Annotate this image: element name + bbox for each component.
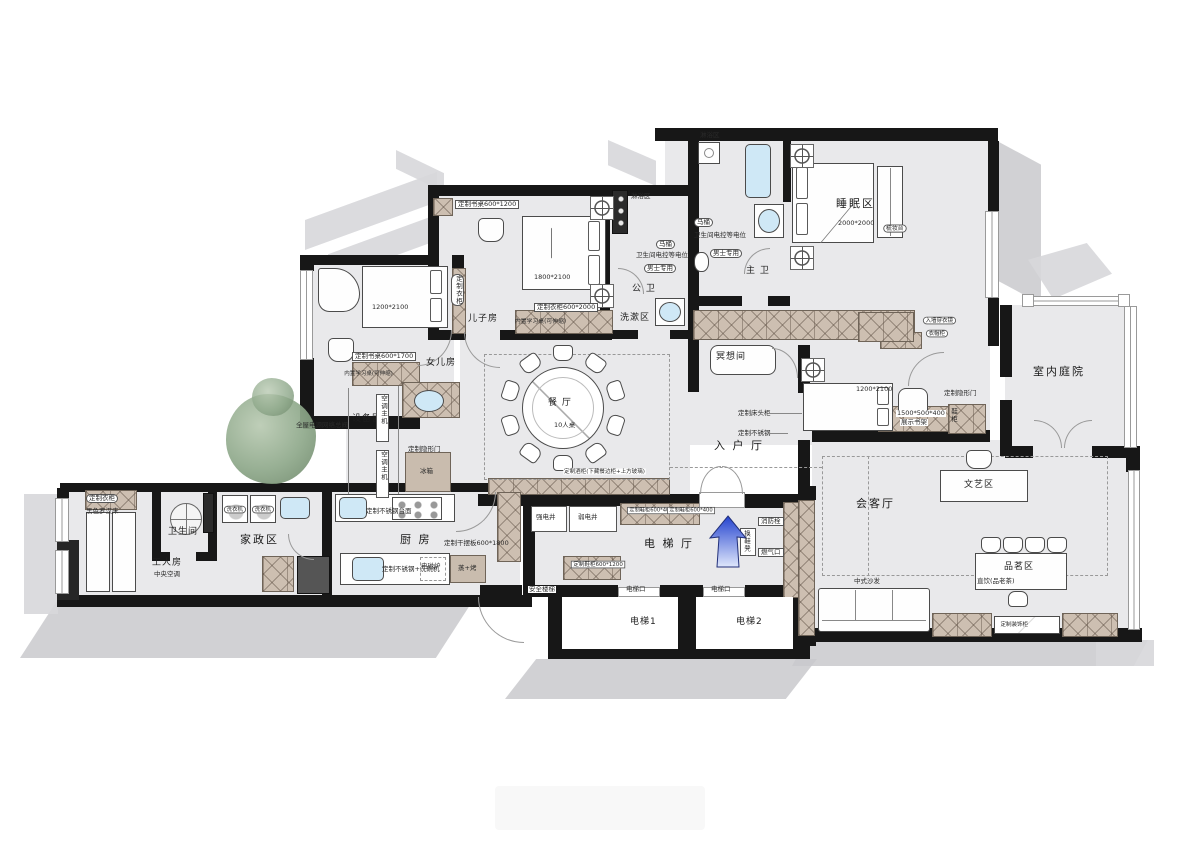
appliance-stack [612,190,628,234]
window-post [1022,294,1034,307]
wardrobe-label: 定制衣柜 [451,274,464,306]
room-label-public-bath: 公 卫 [632,284,656,294]
pillow [588,221,600,251]
shower-drain [704,148,714,158]
toilet [694,252,709,272]
room-label-sleeping: 睡眠区 [836,198,875,211]
elevator-shaft [562,597,678,649]
black-daybed-label: 黑色罗汉床 [86,508,119,515]
bed-dim: 1800*2100 [534,274,570,281]
wardrobe-label: 定制衣柜 [86,494,118,503]
partition [398,386,399,494]
induction-label: 电磁炉 [421,563,441,570]
room-label-kitchen: 厨 房 [400,534,432,547]
weak-shaft-label: 弱电井 [578,514,598,521]
window [55,550,69,594]
laundry-sink [280,497,310,519]
room-label-hall: 电 梯 厅 [644,538,694,551]
floor-plan: 睡眠区 2000*2000 主 卫 公 卫 洗漱区 儿子房 1800*2100 … [0,0,1200,847]
window [55,498,69,542]
cabinet-row [798,500,815,636]
room-label-elevator1: 电梯1 [630,617,657,627]
wall-shadow [792,640,1148,666]
wall-shadow [505,659,817,699]
tea-chair [1025,537,1045,553]
toilet-label: 马桶 [694,218,713,227]
wall [452,255,464,269]
sofa-divider [855,590,856,620]
elevator-door-label: 电梯口 [711,586,731,593]
entry-door-gap [699,492,745,508]
bed-dim: 1200*2100 [372,304,408,311]
wall [697,296,742,306]
watermark [495,786,705,830]
wall [988,296,999,346]
bookshelf-name-label: 展示书架 [900,419,928,426]
maid-note: 中央空调 [154,571,180,578]
equipotential-label: 卫生间电控等电位 [694,232,746,239]
pillow [796,167,808,199]
wall [57,595,532,607]
bed-dim: 2000*2000 [838,220,874,227]
wall [480,585,522,597]
partition [348,388,349,494]
work-desk [297,556,330,594]
dresser-label: 梳妆台 [883,224,906,233]
sofa [818,588,930,632]
strong-shaft-label: 强电井 [536,514,556,521]
wine-cab-label: 定制酒柜(下藏餐边柜+上方玻璃) [563,469,645,475]
room-label-housekeeping: 家政区 [240,534,279,547]
room-label-dining: 餐 厅 [548,398,572,408]
window [1128,470,1140,630]
layout-dashed-line [670,467,822,468]
bed-maid [86,512,110,592]
fold-desk-label: 内置学习桌(可伸缩) [344,371,393,377]
cabinet-row [262,556,294,592]
sofa-line [822,620,926,621]
gas-port-label: 燃气口 [758,548,784,557]
wall-shadow [999,142,1041,304]
shower-label: 淋浴区 [700,132,720,139]
sofa-divider [892,590,893,620]
art-chair [966,450,992,469]
shower-label: 淋浴区 [631,193,651,200]
wall [798,486,816,500]
sink [758,209,780,233]
wardrobe-box-label: 衣帽柜 [926,330,948,338]
ceiling-symbol [790,246,814,270]
wall [300,255,314,271]
ac-unit-label: 空调主机 [376,394,389,442]
bedside-label: 定制床头柜 [738,410,771,417]
entry-door-leaf [722,466,743,494]
fire-hydrant-label: 消防栓 [758,517,784,526]
steam-oven-label: 蒸+烤 [458,565,476,572]
fridge-label: 冰箱 [420,468,433,475]
dining-seats: 10人桌 [554,422,575,429]
dry-rack-label: 定制干摆板600*1800 [444,540,509,547]
bed-maid [112,512,136,592]
sink [414,390,444,412]
pillow [430,298,442,322]
water-heater [203,493,214,533]
wall [1126,446,1140,472]
cabinet-row [1062,613,1118,637]
window [1032,296,1124,306]
sofa-label: 中式沙发 [854,578,880,585]
tree [252,378,294,416]
ac-unit-label: 空调主机 [376,450,389,498]
washer-label: 洗衣机 [252,506,274,514]
men-only-label: 男士专用 [710,249,742,258]
ceiling-symbol [590,196,614,220]
wall-shadow [1096,640,1154,666]
cabinet-row [858,312,914,342]
stainless-label: 定制不锈钢 [738,430,771,437]
desk-daughter-label: 定制书桌600*1700 [352,352,416,361]
tea-chair [1047,537,1067,553]
wall [660,585,703,597]
bed-dim: 1200*2100 [856,386,892,393]
washer-label: 洗衣机 [224,506,246,514]
room-label-living: 会客厅 [856,498,895,511]
room-label-courtyard: 室内庭院 [1033,366,1085,379]
wall [988,141,999,213]
room-label-entry: 入 户 厅 [714,440,764,453]
bathtub [745,144,771,198]
room-label-meditation: 冥想间 [716,352,746,362]
bookshelf-dim-label: 1500*500*400 [896,410,946,417]
desk-chair [478,218,504,242]
mirror-label: 入墙穿衣镜 [923,317,956,325]
pillow [588,255,600,285]
tea-note: 直饮(品老茶) [977,578,1015,585]
pillow [796,203,808,235]
equipotential-label: 卫生间电控等电位 [636,252,688,259]
wall [610,330,638,339]
shoe-cab-label: 定制鞋柜600*1200 [571,561,626,569]
room-label-art: 文艺区 [964,480,994,490]
cabinet-row [497,492,521,562]
hidden-door-label: 定制隐形门 [944,390,977,397]
kitchen-sink [339,497,367,519]
door-arc [478,597,524,643]
wall-shadow [20,602,472,658]
pillow [877,408,889,426]
wall [670,330,690,339]
window [300,270,313,360]
window [985,211,999,298]
ceiling-symbol [801,358,825,382]
counter-label: 定制不锈钢台面 [366,508,412,515]
pillow [430,270,442,294]
room-label-maid: 工人房 [152,558,182,568]
wall-shadow [608,140,656,186]
shoe-v-label: 鞋柜 [949,408,956,423]
room-label-master-bath: 主 卫 [746,266,770,276]
desk-chair [328,338,354,362]
wall [196,552,217,561]
room-label-wash: 洗漱区 [620,313,650,323]
leader-line [768,433,788,434]
room-label-tea: 品茗区 [1004,562,1034,572]
ceiling-symbol [790,144,814,168]
cabinet-row [932,613,992,637]
room-label-stairs: 安全楼梯 [528,586,556,593]
wall [428,185,610,196]
layout-dashed-line [868,456,869,576]
sink [659,302,681,322]
room-label-bath-small: 卫生间 [168,527,198,537]
deco-cab-label: 定制装饰柜 [1000,622,1028,628]
men-only-label: 男士专用 [644,264,676,273]
toilet-label: 马桶 [656,240,675,249]
tea-chair [1008,591,1028,607]
island-sink [352,557,384,581]
tea-chair [981,537,1001,553]
hidden-door-label: 定制隐形门 [408,446,441,453]
wall [303,255,435,265]
desk-son-label: 定制书桌600*1200 [455,200,519,209]
wall [1000,305,1012,377]
fold-desk-label: 内置学习桌(可伸缩) [515,318,566,325]
floor [1005,305,1129,455]
elevator-door-label: 电梯口 [626,586,646,593]
window [1124,306,1137,448]
shoe-bench-label: 换鞋凳 [742,530,749,553]
room-label-daughter: 女儿房 [426,358,456,368]
wardrobe-son-label: 定制衣柜600*2000 [534,303,598,312]
wall [768,296,790,306]
cabinet-row [433,198,453,216]
tea-chair [1003,537,1023,553]
room-label-elevator2: 电梯2 [736,617,763,627]
shoe-cab-small-label: 定制鞋柜600*400 [667,507,715,515]
wall-shadow [24,494,58,614]
room-label-son: 儿子房 [468,314,498,324]
leader-line [768,413,802,414]
power-label: 全屋电源网络总阀 [296,422,348,429]
entry-door-leaf [700,466,721,494]
wall [152,490,161,556]
